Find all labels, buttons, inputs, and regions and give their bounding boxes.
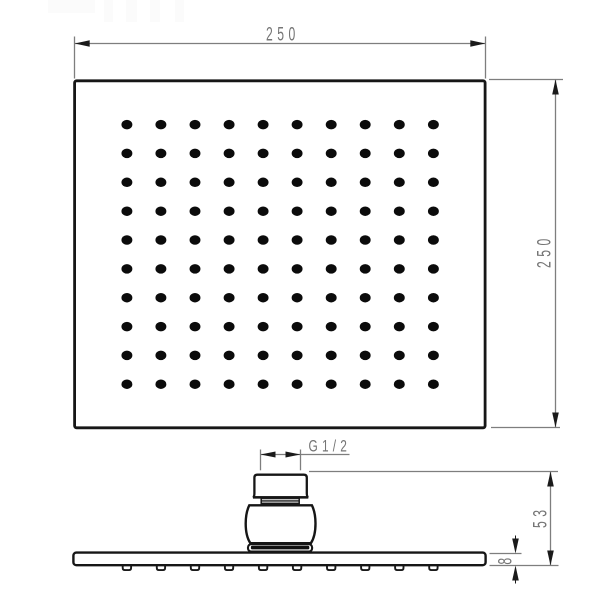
svg-text:53: 53 (531, 506, 551, 528)
svg-text:8: 8 (496, 558, 516, 565)
svg-text:250: 250 (535, 234, 555, 268)
svg-text:250: 250 (266, 25, 300, 45)
svg-text:G1/2: G1/2 (309, 437, 352, 456)
